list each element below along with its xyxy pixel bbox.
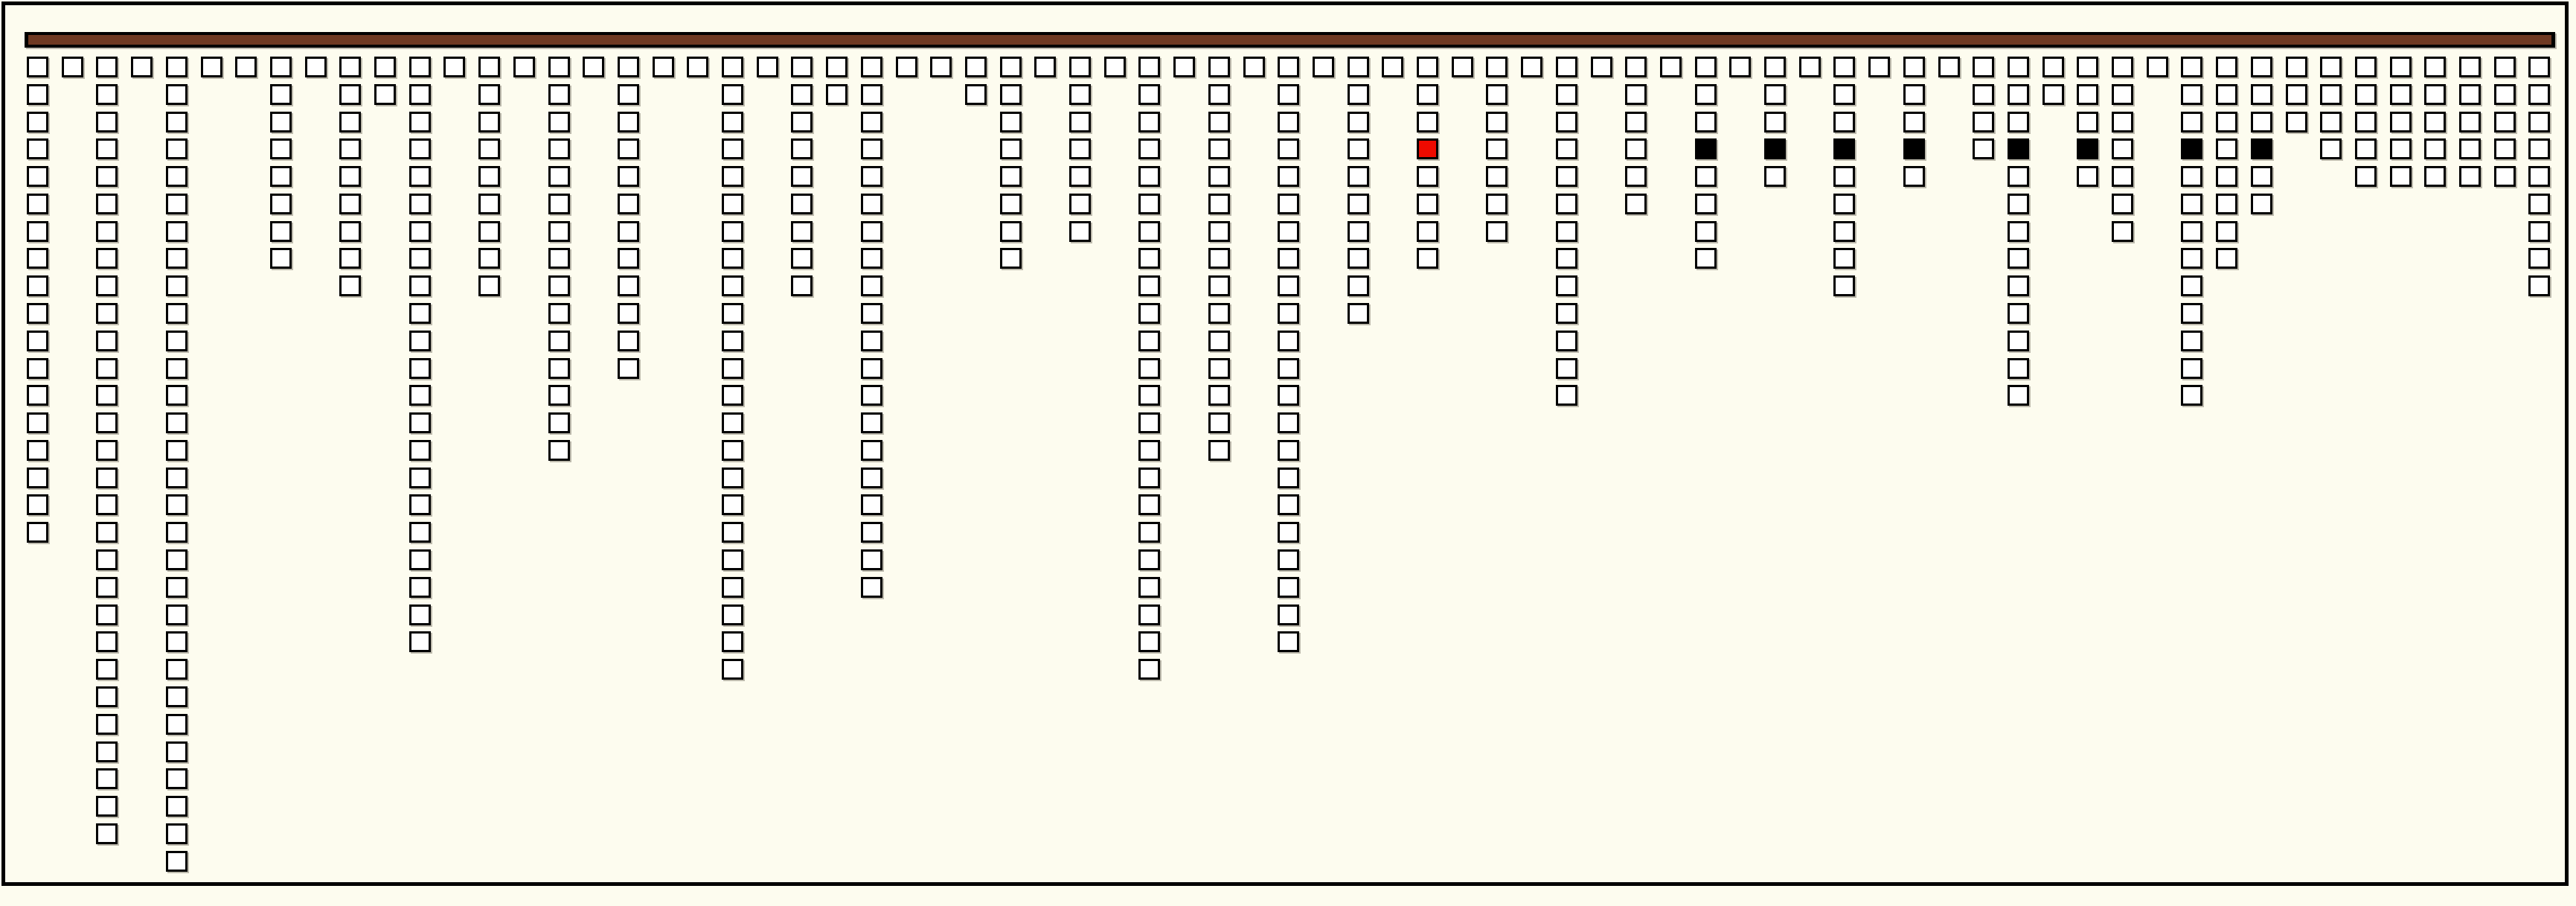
unit-square[interactable]: [409, 138, 431, 159]
unit-square[interactable]: [1799, 57, 1821, 77]
unit-square[interactable]: [478, 84, 500, 105]
unit-square[interactable]: [96, 112, 118, 133]
unit-square[interactable]: [861, 166, 882, 187]
unit-square[interactable]: [166, 631, 188, 652]
unit-square[interactable]: [1278, 358, 1299, 379]
unit-square[interactable]: [722, 412, 743, 433]
unit-square[interactable]: [1000, 194, 1022, 214]
unit-square[interactable]: [96, 577, 118, 598]
unit-square[interactable]: [2008, 331, 2029, 351]
unit-square[interactable]: [1069, 112, 1091, 133]
unit-square[interactable]: [861, 358, 882, 379]
unit-square[interactable]: [443, 57, 465, 77]
unit-square[interactable]: [548, 358, 570, 379]
unit-square[interactable]: [1138, 468, 1160, 488]
unit-square[interactable]: [2181, 84, 2202, 105]
unit-square[interactable]: [1208, 275, 1230, 296]
unit-square-black[interactable]: [2077, 138, 2098, 159]
unit-square[interactable]: [896, 57, 917, 77]
unit-square[interactable]: [618, 194, 639, 214]
unit-square[interactable]: [96, 796, 118, 817]
unit-square[interactable]: [618, 112, 639, 133]
unit-square[interactable]: [2320, 57, 2342, 77]
unit-square[interactable]: [1348, 248, 1369, 269]
unit-square[interactable]: [409, 112, 431, 133]
unit-square[interactable]: [1382, 57, 1403, 77]
unit-square[interactable]: [96, 468, 118, 488]
unit-square[interactable]: [409, 275, 431, 296]
unit-square[interactable]: [1556, 138, 1577, 159]
unit-square[interactable]: [1069, 84, 1091, 105]
unit-square[interactable]: [166, 221, 188, 242]
unit-square[interactable]: [2181, 112, 2202, 133]
unit-square[interactable]: [1208, 440, 1230, 461]
unit-square[interactable]: [1138, 412, 1160, 433]
unit-square[interactable]: [1278, 577, 1299, 598]
unit-square[interactable]: [1348, 57, 1369, 77]
unit-square[interactable]: [2251, 166, 2272, 187]
unit-square[interactable]: [1278, 221, 1299, 242]
unit-square[interactable]: [409, 494, 431, 515]
unit-square[interactable]: [1208, 166, 1230, 187]
unit-square[interactable]: [861, 549, 882, 570]
unit-square[interactable]: [722, 138, 743, 159]
unit-square[interactable]: [1278, 166, 1299, 187]
unit-square[interactable]: [96, 714, 118, 735]
unit-square[interactable]: [166, 331, 188, 351]
unit-square[interactable]: [861, 385, 882, 406]
unit-square[interactable]: [1348, 275, 1369, 296]
unit-square[interactable]: [722, 166, 743, 187]
unit-square[interactable]: [1348, 112, 1369, 133]
unit-square[interactable]: [548, 84, 570, 105]
unit-square[interactable]: [409, 604, 431, 625]
unit-square[interactable]: [166, 604, 188, 625]
unit-square[interactable]: [548, 303, 570, 324]
unit-square[interactable]: [965, 84, 987, 105]
unit-square[interactable]: [548, 440, 570, 461]
unit-square[interactable]: [27, 248, 48, 269]
unit-square[interactable]: [791, 84, 813, 105]
unit-square[interactable]: [478, 112, 500, 133]
unit-square[interactable]: [2181, 358, 2202, 379]
unit-square[interactable]: [409, 194, 431, 214]
unit-square[interactable]: [722, 468, 743, 488]
unit-square[interactable]: [166, 468, 188, 488]
unit-square[interactable]: [826, 57, 848, 77]
unit-square[interactable]: [1138, 494, 1160, 515]
unit-square[interactable]: [2528, 166, 2550, 187]
unit-square[interactable]: [2181, 221, 2202, 242]
unit-square[interactable]: [1313, 57, 1334, 77]
unit-square[interactable]: [166, 385, 188, 406]
unit-square[interactable]: [2077, 84, 2098, 105]
unit-square[interactable]: [2355, 138, 2377, 159]
unit-square[interactable]: [2424, 112, 2446, 133]
unit-square[interactable]: [339, 275, 361, 296]
unit-square[interactable]: [1278, 412, 1299, 433]
unit-square[interactable]: [826, 84, 848, 105]
unit-square[interactable]: [2528, 57, 2550, 77]
unit-square[interactable]: [1208, 138, 1230, 159]
unit-square[interactable]: [1764, 57, 1786, 77]
unit-square[interactable]: [722, 84, 743, 105]
unit-square[interactable]: [1695, 248, 1717, 269]
unit-square[interactable]: [96, 686, 118, 707]
unit-square[interactable]: [513, 57, 535, 77]
unit-square[interactable]: [1625, 84, 1647, 105]
unit-square[interactable]: [27, 138, 48, 159]
unit-square[interactable]: [1833, 275, 1855, 296]
unit-square[interactable]: [1417, 84, 1438, 105]
unit-square[interactable]: [861, 221, 882, 242]
unit-square[interactable]: [1138, 549, 1160, 570]
unit-square[interactable]: [722, 522, 743, 543]
unit-square[interactable]: [1000, 112, 1022, 133]
unit-square[interactable]: [1278, 385, 1299, 406]
unit-square[interactable]: [1069, 166, 1091, 187]
unit-square[interactable]: [722, 604, 743, 625]
unit-square[interactable]: [1833, 57, 1855, 77]
unit-square[interactable]: [96, 823, 118, 844]
unit-square[interactable]: [339, 84, 361, 105]
unit-square[interactable]: [409, 84, 431, 105]
unit-square-black[interactable]: [2008, 138, 2029, 159]
unit-square[interactable]: [1764, 112, 1786, 133]
unit-square[interactable]: [1208, 303, 1230, 324]
unit-square[interactable]: [166, 714, 188, 735]
unit-square[interactable]: [1000, 166, 1022, 187]
unit-square[interactable]: [1208, 194, 1230, 214]
unit-square[interactable]: [409, 631, 431, 652]
unit-square[interactable]: [1278, 112, 1299, 133]
unit-square[interactable]: [1486, 138, 1508, 159]
unit-square[interactable]: [2181, 331, 2202, 351]
unit-square[interactable]: [2077, 166, 2098, 187]
unit-square[interactable]: [1486, 112, 1508, 133]
unit-square[interactable]: [2494, 57, 2516, 77]
unit-square[interactable]: [166, 412, 188, 433]
unit-square[interactable]: [27, 440, 48, 461]
unit-square[interactable]: [1833, 248, 1855, 269]
unit-square[interactable]: [27, 194, 48, 214]
unit-square[interactable]: [1695, 57, 1717, 77]
unit-square[interactable]: [1138, 522, 1160, 543]
unit-square[interactable]: [2181, 275, 2202, 296]
unit-square[interactable]: [653, 57, 674, 77]
unit-square[interactable]: [339, 138, 361, 159]
unit-square[interactable]: [1833, 112, 1855, 133]
unit-square[interactable]: [861, 440, 882, 461]
unit-square[interactable]: [1521, 57, 1542, 77]
unit-square[interactable]: [791, 275, 813, 296]
unit-square[interactable]: [1556, 166, 1577, 187]
unit-square[interactable]: [1000, 138, 1022, 159]
unit-square[interactable]: [722, 358, 743, 379]
unit-square[interactable]: [2459, 112, 2481, 133]
unit-square[interactable]: [722, 549, 743, 570]
unit-square[interactable]: [1278, 494, 1299, 515]
unit-square[interactable]: [548, 194, 570, 214]
unit-square[interactable]: [1417, 112, 1438, 133]
unit-square[interactable]: [270, 166, 292, 187]
unit-square[interactable]: [409, 440, 431, 461]
unit-square[interactable]: [2390, 112, 2412, 133]
unit-square[interactable]: [166, 275, 188, 296]
unit-square[interactable]: [166, 741, 188, 762]
unit-square[interactable]: [1938, 57, 1960, 77]
unit-square[interactable]: [722, 631, 743, 652]
unit-square[interactable]: [131, 57, 153, 77]
unit-square[interactable]: [166, 796, 188, 817]
unit-square[interactable]: [96, 412, 118, 433]
unit-square[interactable]: [722, 194, 743, 214]
unit-square[interactable]: [2355, 57, 2377, 77]
unit-square[interactable]: [618, 248, 639, 269]
unit-square[interactable]: [861, 275, 882, 296]
unit-square[interactable]: [791, 248, 813, 269]
unit-square[interactable]: [166, 166, 188, 187]
unit-square[interactable]: [618, 358, 639, 379]
unit-square[interactable]: [166, 577, 188, 598]
unit-square[interactable]: [2008, 303, 2029, 324]
unit-square[interactable]: [791, 166, 813, 187]
unit-square[interactable]: [1452, 57, 1473, 77]
unit-square[interactable]: [27, 358, 48, 379]
unit-square[interactable]: [270, 112, 292, 133]
unit-square[interactable]: [270, 221, 292, 242]
unit-square[interactable]: [548, 275, 570, 296]
unit-square[interactable]: [861, 248, 882, 269]
unit-square[interactable]: [1556, 57, 1577, 77]
unit-square[interactable]: [1486, 84, 1508, 105]
unit-square[interactable]: [2424, 166, 2446, 187]
unit-square[interactable]: [618, 331, 639, 351]
unit-square[interactable]: [270, 84, 292, 105]
unit-square[interactable]: [791, 221, 813, 242]
unit-square[interactable]: [2112, 57, 2133, 77]
unit-square[interactable]: [2286, 84, 2307, 105]
unit-square[interactable]: [166, 440, 188, 461]
unit-square[interactable]: [235, 57, 257, 77]
unit-square[interactable]: [1486, 166, 1508, 187]
unit-square[interactable]: [548, 385, 570, 406]
unit-square[interactable]: [1695, 84, 1717, 105]
unit-square[interactable]: [1556, 248, 1577, 269]
unit-square[interactable]: [2077, 57, 2098, 77]
unit-square[interactable]: [2286, 112, 2307, 133]
unit-square[interactable]: [27, 494, 48, 515]
unit-square[interactable]: [618, 57, 639, 77]
unit-square[interactable]: [1138, 358, 1160, 379]
unit-square[interactable]: [62, 57, 83, 77]
unit-square[interactable]: [166, 522, 188, 543]
unit-square[interactable]: [166, 686, 188, 707]
unit-square[interactable]: [1069, 194, 1091, 214]
unit-square[interactable]: [618, 303, 639, 324]
unit-square[interactable]: [791, 138, 813, 159]
unit-square[interactable]: [1278, 468, 1299, 488]
unit-square[interactable]: [27, 112, 48, 133]
unit-square[interactable]: [2390, 84, 2412, 105]
unit-square[interactable]: [618, 84, 639, 105]
unit-square[interactable]: [2251, 112, 2272, 133]
unit-square[interactable]: [2112, 84, 2133, 105]
unit-square[interactable]: [1417, 248, 1438, 269]
unit-square[interactable]: [2251, 84, 2272, 105]
unit-square[interactable]: [96, 631, 118, 652]
unit-square[interactable]: [722, 494, 743, 515]
unit-square[interactable]: [1173, 57, 1195, 77]
unit-square[interactable]: [2216, 84, 2237, 105]
unit-square[interactable]: [2008, 166, 2029, 187]
unit-square[interactable]: [96, 494, 118, 515]
unit-square[interactable]: [618, 275, 639, 296]
unit-square[interactable]: [791, 194, 813, 214]
unit-square[interactable]: [409, 358, 431, 379]
unit-square[interactable]: [2216, 112, 2237, 133]
unit-square[interactable]: [861, 84, 882, 105]
unit-square[interactable]: [2494, 112, 2516, 133]
unit-square[interactable]: [96, 275, 118, 296]
unit-square[interactable]: [1348, 303, 1369, 324]
unit-square[interactable]: [548, 166, 570, 187]
unit-square[interactable]: [166, 194, 188, 214]
unit-square[interactable]: [1138, 577, 1160, 598]
unit-square[interactable]: [409, 522, 431, 543]
unit-square[interactable]: [2042, 84, 2064, 105]
unit-square[interactable]: [1973, 57, 1994, 77]
unit-square[interactable]: [166, 823, 188, 844]
unit-square[interactable]: [791, 112, 813, 133]
unit-square[interactable]: [96, 84, 118, 105]
unit-square[interactable]: [1278, 549, 1299, 570]
unit-square[interactable]: [1278, 138, 1299, 159]
unit-square[interactable]: [1208, 84, 1230, 105]
unit-square[interactable]: [1625, 194, 1647, 214]
unit-square[interactable]: [409, 468, 431, 488]
unit-square[interactable]: [687, 57, 708, 77]
unit-square[interactable]: [166, 549, 188, 570]
unit-square[interactable]: [1625, 166, 1647, 187]
unit-square[interactable]: [722, 57, 743, 77]
unit-square[interactable]: [166, 57, 188, 77]
unit-square[interactable]: [1278, 604, 1299, 625]
unit-square[interactable]: [339, 248, 361, 269]
unit-square[interactable]: [96, 358, 118, 379]
unit-square[interactable]: [2459, 138, 2481, 159]
unit-square[interactable]: [409, 549, 431, 570]
unit-square[interactable]: [27, 275, 48, 296]
unit-square[interactable]: [1069, 221, 1091, 242]
unit-square[interactable]: [2181, 248, 2202, 269]
unit-square[interactable]: [1556, 303, 1577, 324]
unit-square[interactable]: [1208, 112, 1230, 133]
unit-square[interactable]: [548, 57, 570, 77]
unit-square[interactable]: [2286, 57, 2307, 77]
unit-square[interactable]: [166, 768, 188, 789]
unit-square[interactable]: [1695, 194, 1717, 214]
unit-square[interactable]: [409, 166, 431, 187]
unit-square[interactable]: [166, 112, 188, 133]
unit-square[interactable]: [2528, 248, 2550, 269]
unit-square[interactable]: [96, 138, 118, 159]
unit-square[interactable]: [2216, 221, 2237, 242]
unit-square[interactable]: [339, 194, 361, 214]
unit-square[interactable]: [1104, 57, 1126, 77]
unit-square[interactable]: [27, 84, 48, 105]
unit-square[interactable]: [722, 331, 743, 351]
unit-square[interactable]: [2181, 166, 2202, 187]
unit-square[interactable]: [1417, 221, 1438, 242]
unit-square[interactable]: [478, 221, 500, 242]
unit-square[interactable]: [96, 303, 118, 324]
unit-square[interactable]: [2008, 112, 2029, 133]
unit-square[interactable]: [1417, 166, 1438, 187]
unit-square[interactable]: [1243, 57, 1265, 77]
unit-square[interactable]: [270, 57, 292, 77]
unit-square[interactable]: [2251, 194, 2272, 214]
unit-square[interactable]: [1138, 275, 1160, 296]
unit-square[interactable]: [548, 331, 570, 351]
unit-square[interactable]: [1556, 385, 1577, 406]
unit-square[interactable]: [478, 194, 500, 214]
unit-square-black[interactable]: [1764, 138, 1786, 159]
unit-square[interactable]: [96, 549, 118, 570]
unit-square[interactable]: [1278, 303, 1299, 324]
unit-square[interactable]: [1417, 194, 1438, 214]
unit-square[interactable]: [1695, 166, 1717, 187]
unit-square[interactable]: [1556, 112, 1577, 133]
unit-square[interactable]: [1000, 248, 1022, 269]
unit-square[interactable]: [2008, 84, 2029, 105]
unit-square[interactable]: [96, 741, 118, 762]
unit-square[interactable]: [861, 522, 882, 543]
unit-square[interactable]: [166, 248, 188, 269]
unit-square[interactable]: [1000, 221, 1022, 242]
unit-square[interactable]: [1208, 57, 1230, 77]
unit-square[interactable]: [1000, 57, 1022, 77]
unit-square[interactable]: [339, 112, 361, 133]
unit-square[interactable]: [2181, 303, 2202, 324]
unit-square[interactable]: [339, 57, 361, 77]
unit-square[interactable]: [1278, 248, 1299, 269]
unit-square[interactable]: [2008, 385, 2029, 406]
unit-square[interactable]: [1069, 138, 1091, 159]
unit-square[interactable]: [2181, 385, 2202, 406]
unit-square[interactable]: [2216, 57, 2237, 77]
unit-square[interactable]: [2216, 138, 2237, 159]
unit-square[interactable]: [1208, 358, 1230, 379]
unit-square[interactable]: [2494, 84, 2516, 105]
unit-square[interactable]: [1973, 112, 1994, 133]
unit-square[interactable]: [1903, 166, 1925, 187]
unit-square[interactable]: [96, 440, 118, 461]
unit-square[interactable]: [27, 468, 48, 488]
unit-square[interactable]: [1695, 112, 1717, 133]
unit-square[interactable]: [1660, 57, 1682, 77]
unit-square[interactable]: [339, 221, 361, 242]
unit-square[interactable]: [1278, 331, 1299, 351]
unit-square[interactable]: [27, 57, 48, 77]
unit-square[interactable]: [1138, 604, 1160, 625]
unit-square[interactable]: [2216, 166, 2237, 187]
unit-square[interactable]: [1833, 166, 1855, 187]
unit-square[interactable]: [409, 385, 431, 406]
unit-square[interactable]: [96, 57, 118, 77]
unit-square[interactable]: [861, 194, 882, 214]
unit-square[interactable]: [409, 303, 431, 324]
